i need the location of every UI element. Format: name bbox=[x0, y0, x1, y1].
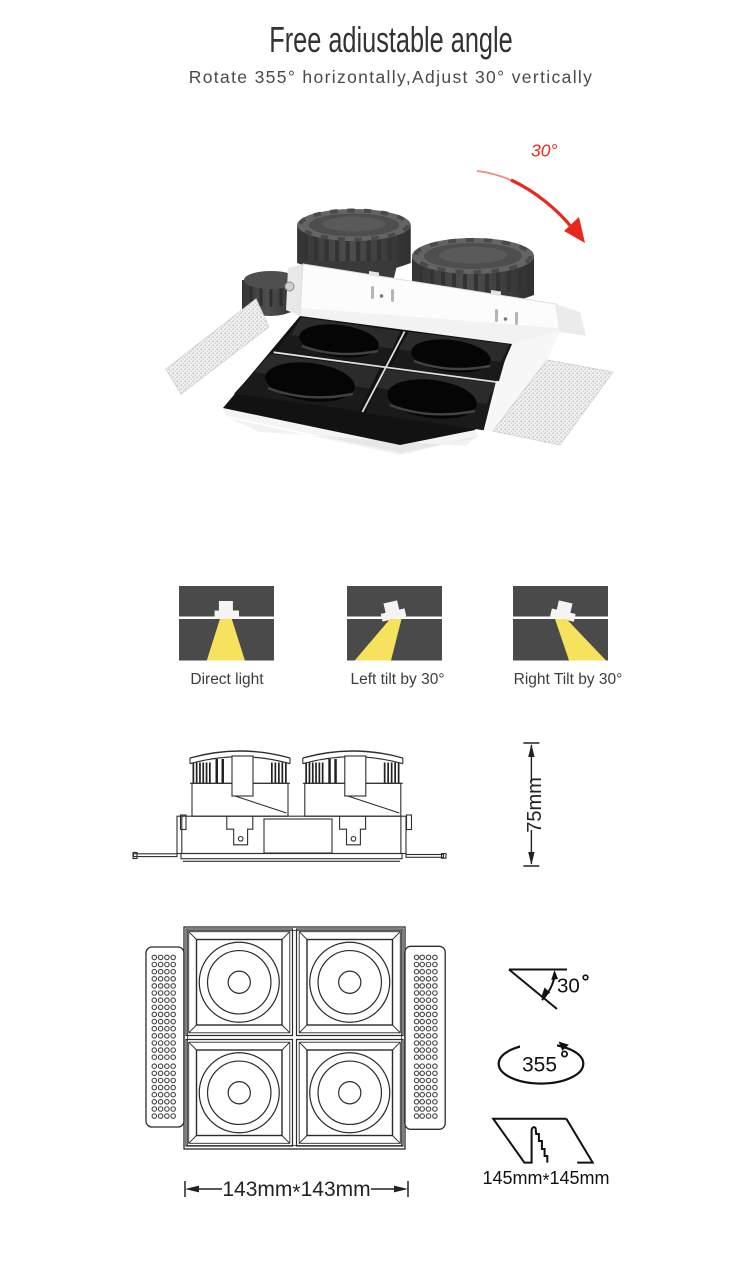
svg-text:30°: 30° bbox=[531, 141, 557, 161]
svg-text:Direct light: Direct light bbox=[190, 671, 264, 688]
svg-text:355: 355 bbox=[522, 1054, 557, 1077]
svg-text:Left tilt by 30°: Left tilt by 30° bbox=[350, 671, 444, 688]
svg-text:30: 30 bbox=[557, 975, 580, 998]
svg-text:Right Tilt by 30°: Right Tilt by 30° bbox=[514, 671, 623, 688]
svg-text:143mm*143mm: 143mm*143mm bbox=[222, 1178, 370, 1204]
svg-text:145mm*145mm: 145mm*145mm bbox=[482, 1168, 609, 1191]
svg-text:75mm: 75mm bbox=[524, 777, 546, 833]
